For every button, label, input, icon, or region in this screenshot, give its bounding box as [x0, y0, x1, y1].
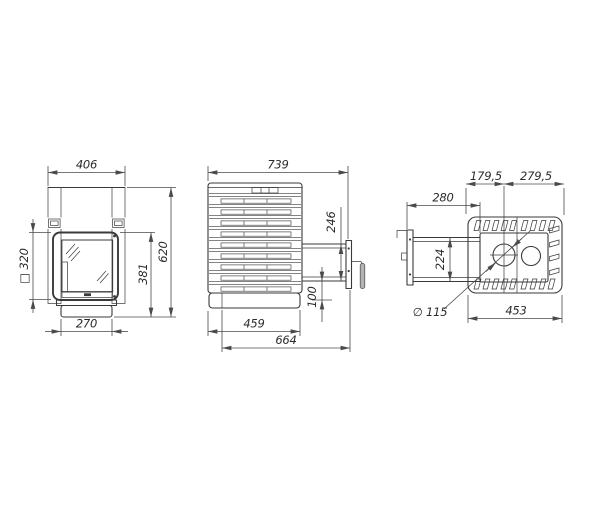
stone-cage: [208, 183, 302, 293]
dim-label-diameter-115: ∅ 115: [413, 305, 448, 319]
latch: [84, 293, 91, 296]
screw-bottom: [409, 273, 411, 275]
dim-label-280: 280: [432, 191, 453, 205]
dim-label-179-5: 179,5: [470, 169, 502, 183]
dim-label-224: 224: [433, 249, 447, 270]
dim-label-279-5: 279,5: [520, 169, 552, 183]
hinge-pin-bottom: [113, 295, 116, 298]
hinge-pin-top: [113, 235, 116, 238]
dim-label-453: 453: [505, 304, 526, 318]
door-handle: [360, 264, 365, 289]
dim-label-664: 664: [275, 333, 296, 347]
dim-label-100: 100: [305, 286, 319, 307]
dim-label-246: 246: [324, 211, 338, 232]
dim-label-406: 406: [76, 158, 97, 172]
dim-label-270: 270: [76, 317, 97, 331]
screw-top: [348, 247, 350, 249]
dim-label-381: 381: [136, 263, 150, 284]
drawing-canvas: 406 620 381 □ 320: [0, 0, 600, 522]
dim-label-739: 739: [267, 158, 288, 172]
dim-label-459: 459: [243, 317, 264, 331]
screw-top: [409, 238, 411, 240]
screw-bottom: [348, 270, 350, 272]
dim-label-320: □ 320: [17, 248, 31, 283]
dim-label-620: 620: [156, 241, 170, 262]
